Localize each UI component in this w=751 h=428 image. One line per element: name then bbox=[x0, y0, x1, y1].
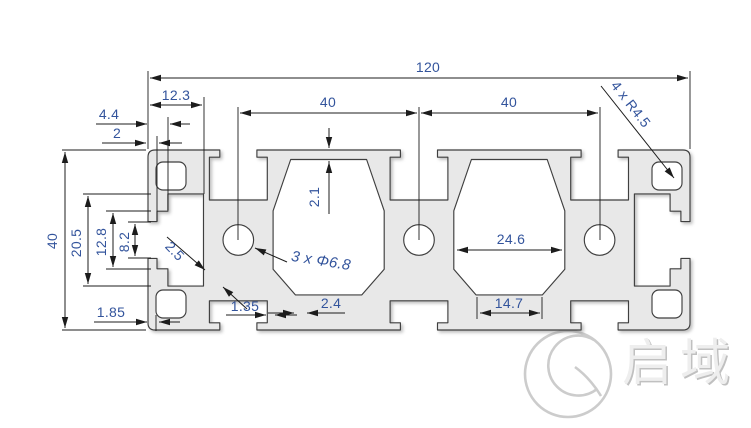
dim-bay-clear-width: 24.6 bbox=[497, 232, 525, 246]
corner-cavity-bottom-left bbox=[156, 290, 186, 318]
dim-web-wall: 2.4 bbox=[321, 296, 341, 310]
bay-cavity-right bbox=[454, 160, 565, 295]
dim-bottom-lip: 1.85 bbox=[97, 305, 125, 319]
watermark-logo bbox=[525, 331, 611, 417]
corner-cavity-top-right bbox=[652, 162, 682, 190]
technical-drawing-canvas: 120 12.3 40 40 4 x R4.5 4.4 2 40 20.5 12… bbox=[0, 0, 751, 428]
dim-end-tab: 4.4 bbox=[99, 107, 119, 121]
dim-slot-opening: 8.2 bbox=[117, 232, 131, 252]
dim-pitch-a: 40 bbox=[320, 95, 336, 109]
corner-cavity-top-left bbox=[156, 162, 186, 190]
dim-mid-cavity-height: 12.8 bbox=[94, 228, 108, 256]
watermark-q-tail bbox=[575, 367, 601, 396]
dim-bottom-web-width: 14.7 bbox=[495, 296, 523, 310]
corner-cavity-bottom-right bbox=[652, 290, 682, 318]
dim-end-slot-depth: 12.3 bbox=[162, 88, 190, 102]
dim-side-wall: 1.35 bbox=[231, 299, 259, 313]
watermark-brand-text: 启域 bbox=[622, 338, 742, 388]
dim-end-lip: 2 bbox=[113, 126, 121, 140]
dim-overall-width: 120 bbox=[416, 60, 440, 74]
watermark-circle bbox=[525, 331, 611, 417]
dim-pitch-b: 40 bbox=[501, 95, 517, 109]
dim-cap-thickness: 2.1 bbox=[307, 187, 321, 207]
watermark-q-swirl bbox=[548, 336, 597, 396]
dim-end-cavity-height: 20.5 bbox=[69, 229, 83, 257]
dim-overall-height: 40 bbox=[45, 233, 59, 249]
